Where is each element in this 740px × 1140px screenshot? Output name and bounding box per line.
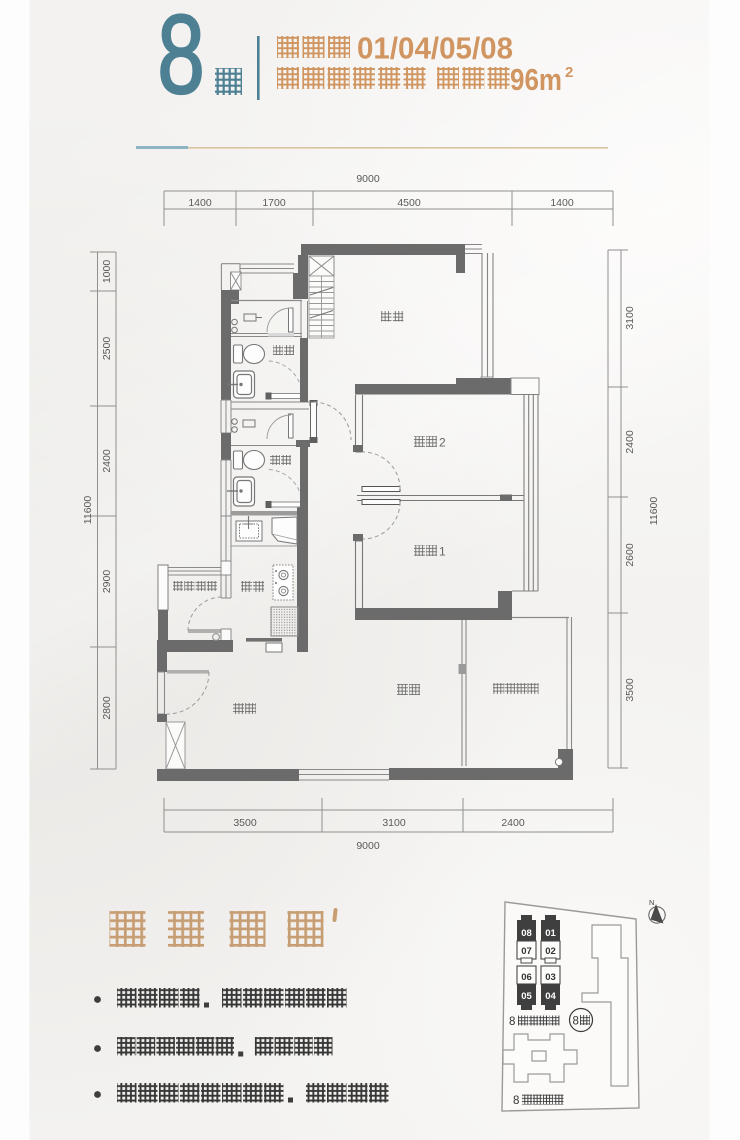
svg-text:11600: 11600 <box>648 497 660 526</box>
svg-text:06: 06 <box>521 972 532 983</box>
svg-text:1400: 1400 <box>550 197 574 209</box>
svg-text:8: 8 <box>157 0 204 118</box>
svg-text:2: 2 <box>565 64 573 81</box>
svg-text:3100: 3100 <box>382 817 406 829</box>
svg-text:8: 8 <box>513 1095 519 1107</box>
svg-text:01/04/05/08: 01/04/05/08 <box>357 31 513 66</box>
svg-text:1: 1 <box>439 545 446 559</box>
svg-text:9000: 9000 <box>356 173 380 185</box>
svg-text:8: 8 <box>509 1016 515 1028</box>
svg-text:08: 08 <box>521 928 532 939</box>
svg-text:2400: 2400 <box>501 817 525 829</box>
svg-text:2800: 2800 <box>101 696 113 720</box>
svg-text:9000: 9000 <box>356 840 380 852</box>
svg-text:8: 8 <box>573 1016 579 1028</box>
svg-text:3500: 3500 <box>624 678 636 702</box>
svg-text:N: N <box>649 898 654 907</box>
svg-text:01: 01 <box>545 928 556 939</box>
svg-text:2900: 2900 <box>101 570 113 594</box>
svg-text:3100: 3100 <box>624 306 636 330</box>
svg-text:2600: 2600 <box>624 543 636 567</box>
svg-text:04: 04 <box>545 991 556 1002</box>
svg-text:2400: 2400 <box>101 449 113 473</box>
svg-text:02: 02 <box>545 946 556 957</box>
svg-text:1000: 1000 <box>101 260 113 284</box>
svg-text:03: 03 <box>545 972 556 983</box>
svg-text:07: 07 <box>521 946 532 957</box>
svg-text:96m: 96m <box>510 62 562 97</box>
svg-text:2: 2 <box>439 436 446 450</box>
svg-text:1400: 1400 <box>188 197 212 209</box>
svg-text:3500: 3500 <box>233 817 257 829</box>
svg-text:2400: 2400 <box>624 430 636 454</box>
svg-text:11600: 11600 <box>82 496 94 525</box>
svg-text:4500: 4500 <box>397 197 421 209</box>
svg-text:1700: 1700 <box>262 197 286 209</box>
svg-text:2500: 2500 <box>101 337 113 361</box>
svg-text:05: 05 <box>521 991 532 1002</box>
